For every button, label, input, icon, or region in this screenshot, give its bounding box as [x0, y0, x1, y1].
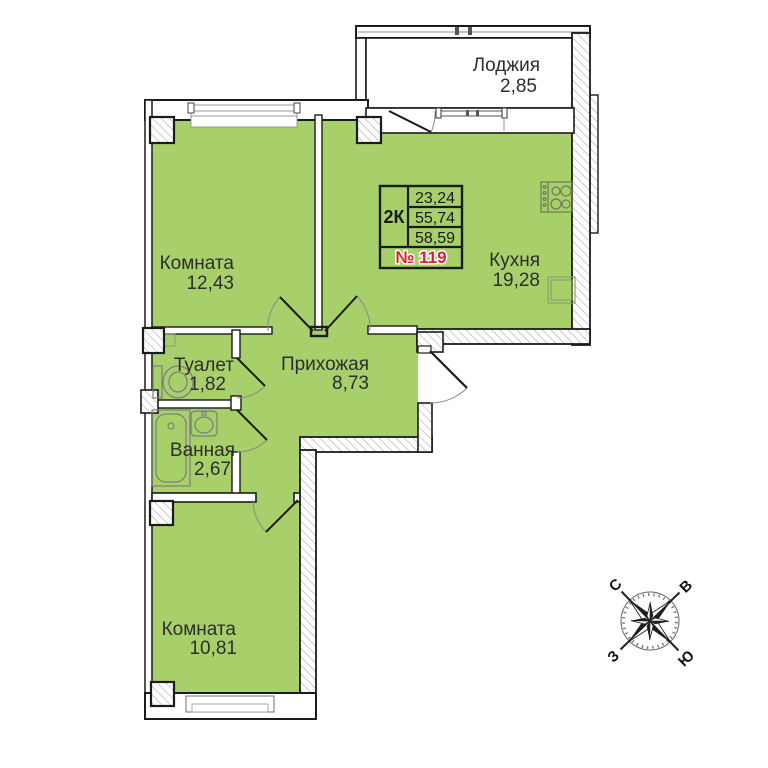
- living-area-value: 23,24: [415, 190, 455, 207]
- pillar: [357, 117, 381, 143]
- entrance-jamb-block: [418, 346, 431, 353]
- label-loggia-area: 2,85: [500, 76, 537, 97]
- label-loggia-name: Лоджия: [473, 55, 540, 76]
- kitchen-top-wall: [366, 108, 574, 133]
- label-room2-area: 10,81: [189, 638, 237, 659]
- pillar: [150, 117, 174, 143]
- apartment-number: № 119: [395, 248, 446, 267]
- hall-kitchen-wall: [368, 326, 417, 334]
- hall-step-wall: [300, 437, 432, 452]
- label-room1-area: 12,43: [186, 273, 234, 294]
- toilet-bath-wall: [152, 400, 240, 408]
- area-value: 55,74: [415, 210, 455, 227]
- label-bath-name: Ванная: [170, 440, 235, 461]
- room1-kitchen-partition: [315, 115, 322, 330]
- label-room1-name: Комната: [160, 253, 235, 274]
- label-kitchen-name: Кухня: [489, 250, 540, 271]
- loggia-interior: [366, 38, 572, 108]
- total-area-value: 58,59: [415, 230, 455, 247]
- room1-window: [188, 103, 300, 127]
- label-bath-area: 2,67: [194, 459, 231, 480]
- label-hall-area: 8,73: [332, 373, 369, 394]
- label-toilet-name: Туалет: [174, 355, 234, 376]
- pillar: [143, 328, 164, 353]
- label-room2-name: Комната: [162, 619, 237, 640]
- label-kitchen-area: 19,28: [492, 270, 540, 291]
- room1-floor: [152, 115, 315, 330]
- entrance-lower-wall: [418, 403, 432, 452]
- floor-plan: 2К 23,24 55,74 58,59 № 119 Лоджия 2,85 К…: [0, 0, 768, 768]
- room2-window: [186, 696, 274, 712]
- label-toilet-area: 1,82: [189, 374, 226, 395]
- info-box: 2К 23,24 55,74 58,59 № 119: [380, 186, 462, 268]
- pillar: [150, 501, 173, 525]
- floor-plan-page: 2К 23,24 55,74 58,59 № 119 Лоджия 2,85 К…: [0, 0, 768, 768]
- label-hall-name: Прихожая: [281, 354, 369, 375]
- toilet-right-wall: [232, 330, 240, 358]
- room2-floor: [152, 500, 300, 693]
- pillar: [151, 682, 174, 706]
- room1-toilet-wall: [152, 327, 272, 334]
- room2-right-wall: [300, 450, 316, 700]
- apartment-type: 2К: [384, 207, 406, 227]
- glazing-tick: [455, 27, 459, 35]
- glazing-tick: [468, 27, 472, 35]
